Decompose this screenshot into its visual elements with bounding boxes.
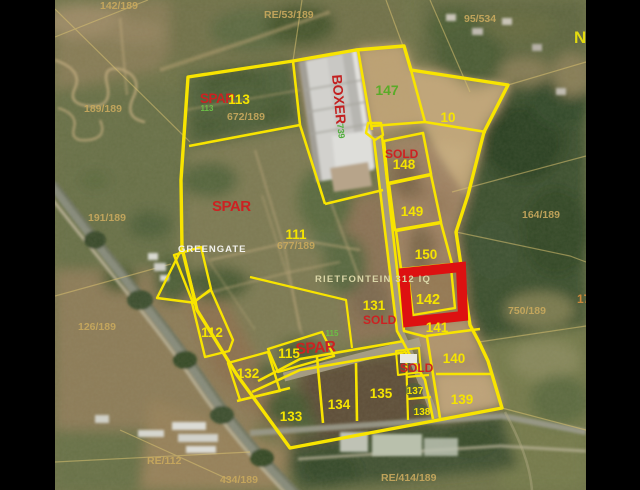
svg-text:672/189: 672/189 [227,111,265,123]
svg-text:10: 10 [440,110,455,125]
svg-text:739: 739 [335,123,347,139]
svg-text:113: 113 [201,104,214,113]
svg-text:115: 115 [278,346,300,361]
svg-text:149: 149 [401,204,424,219]
svg-text:142: 142 [416,292,440,308]
svg-text:126/189: 126/189 [78,321,116,333]
svg-text:SPAR: SPAR [212,198,251,215]
svg-text:RE/53/189: RE/53/189 [264,9,314,21]
svg-text:N: N [574,28,586,47]
svg-text:139: 139 [451,392,474,407]
svg-text:95/534: 95/534 [464,13,496,25]
svg-text:434/189: 434/189 [220,474,258,486]
svg-text:RE/414/189: RE/414/189 [381,472,437,484]
svg-text:115: 115 [326,329,339,338]
svg-text:137: 137 [407,386,424,397]
svg-text:RIETFONTEIN 312 IQ: RIETFONTEIN 312 IQ [315,274,431,285]
svg-text:134: 134 [328,397,351,412]
svg-text:147: 147 [375,82,399,98]
svg-text:132: 132 [237,366,260,381]
svg-text:135: 135 [370,386,393,401]
svg-text:189/189: 189/189 [84,103,122,115]
svg-text:111: 111 [285,227,307,242]
svg-text:133: 133 [280,409,303,424]
svg-text:131: 131 [363,298,386,313]
svg-text:RE/112: RE/112 [147,455,182,467]
svg-text:113: 113 [228,92,250,107]
svg-text:148: 148 [393,157,416,172]
svg-text:141: 141 [426,320,449,335]
svg-text:164/189: 164/189 [522,209,560,221]
svg-text:SPAR: SPAR [295,338,336,358]
svg-text:SOLD: SOLD [363,313,397,327]
svg-text:150: 150 [415,247,438,262]
svg-text:SOLD: SOLD [400,361,434,375]
svg-text:138: 138 [414,407,431,418]
svg-text:191/189: 191/189 [88,212,126,224]
svg-text:GREENGATE: GREENGATE [178,244,246,255]
svg-text:750/189: 750/189 [508,305,546,317]
svg-text:140: 140 [443,351,466,366]
svg-text:112: 112 [201,325,223,340]
svg-text:142/189: 142/189 [100,0,138,12]
